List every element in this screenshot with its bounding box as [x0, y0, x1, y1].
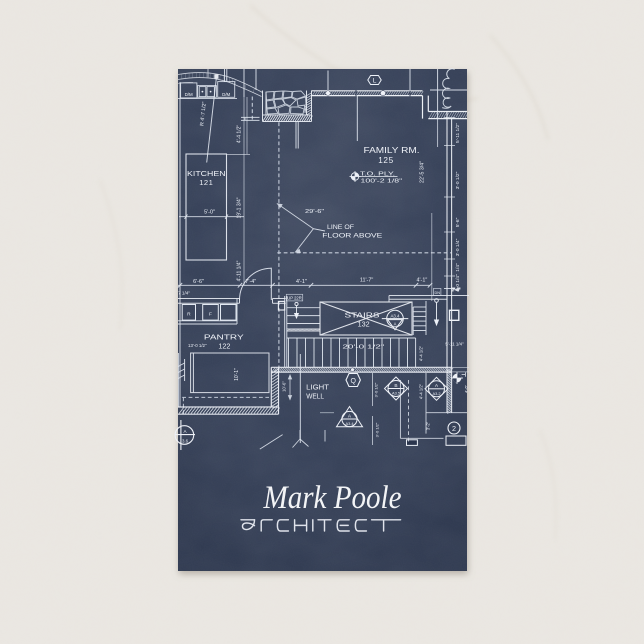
svg-text:22'-5 3/4": 22'-5 3/4" — [420, 161, 426, 183]
svg-text:Mark Poole: Mark Poole — [263, 480, 402, 516]
svg-text:3'-0 1/4": 3'-0 1/4" — [455, 238, 461, 256]
svg-text:1/4": 1/4" — [455, 263, 461, 272]
svg-text:L: L — [373, 77, 377, 84]
svg-text:2: 2 — [452, 424, 456, 433]
svg-text:B: B — [394, 383, 397, 389]
svg-text:KITCHEN: KITCHEN — [187, 169, 226, 178]
svg-text:A3.4: A3.4 — [345, 421, 354, 426]
svg-text:LINE OF: LINE OF — [327, 225, 354, 231]
svg-text:STAIRS: STAIRS — [345, 311, 380, 320]
svg-text:11'-7": 11'-7" — [360, 278, 373, 284]
svg-text:4'-4 1/2": 4'-4 1/2" — [419, 383, 424, 399]
svg-text:5'-11 1/4": 5'-11 1/4" — [445, 342, 464, 347]
svg-text:4'-4 1/2": 4'-4 1/2" — [237, 125, 243, 144]
svg-text:A3.5: A3.5 — [392, 391, 400, 396]
svg-text:20'-0 1/2": 20'-0 1/2" — [342, 345, 384, 351]
svg-text:A: A — [394, 322, 397, 327]
svg-text:DN: DN — [434, 291, 440, 295]
svg-text:A3.2: A3.2 — [432, 391, 440, 396]
svg-text:29'-6": 29'-6" — [305, 209, 324, 215]
svg-text:7 1/4": 7 1/4" — [178, 291, 190, 296]
svg-text:R: R — [187, 312, 191, 318]
svg-text:5'-0": 5'-0" — [204, 210, 215, 216]
svg-text:4'-6": 4'-6" — [464, 384, 469, 393]
svg-text:122: 122 — [218, 342, 230, 351]
svg-text:7'-4": 7'-4" — [452, 287, 461, 292]
svg-text:13'-0 1/2": 13'-0 1/2" — [188, 343, 207, 348]
svg-text:3'-2": 3'-2" — [426, 421, 431, 430]
svg-text:D/M: D/M — [222, 92, 230, 97]
svg-text:4'-1": 4'-1" — [417, 278, 428, 284]
svg-text:5'-11 1/2": 5'-11 1/2" — [455, 123, 461, 143]
svg-text:FLOOR ABOVE: FLOOR ABOVE — [322, 234, 382, 240]
svg-text:19'-1 3/4": 19'-1 3/4" — [237, 197, 243, 218]
svg-text:WELL: WELL — [306, 393, 324, 400]
svg-text:3'-0 1/2": 3'-0 1/2" — [374, 382, 379, 397]
svg-text:LIGHT: LIGHT — [306, 385, 330, 392]
svg-text:125: 125 — [378, 156, 393, 165]
svg-text:121: 121 — [199, 178, 213, 187]
svg-text:3'-0 1/2": 3'-0 1/2" — [375, 422, 380, 437]
svg-text:PANTRY: PANTRY — [204, 333, 244, 342]
svg-text:4'-11 1/4": 4'-11 1/4" — [237, 260, 243, 281]
svg-text:4'-1": 4'-1" — [296, 279, 307, 285]
svg-text:132: 132 — [358, 320, 370, 329]
svg-text:F: F — [209, 312, 212, 318]
svg-text:6'-6": 6'-6" — [193, 279, 204, 285]
svg-text:5'-6": 5'-6" — [455, 217, 461, 227]
svg-text:10'-6": 10'-6" — [282, 381, 287, 392]
svg-text:10'-1": 10'-1" — [234, 368, 240, 381]
svg-text:D/M: D/M — [185, 92, 193, 97]
svg-text:FAMILY RM.: FAMILY RM. — [364, 145, 420, 155]
svg-text:3.6: 3.6 — [182, 438, 189, 443]
svg-text:Q: Q — [350, 378, 356, 385]
svg-text:4'-4 1/2": 4'-4 1/2" — [419, 345, 424, 361]
svg-text:UP 22R: UP 22R — [287, 296, 302, 301]
svg-text:100'-2 1/8": 100'-2 1/8" — [361, 178, 403, 184]
svg-text:3'-0 1/2": 3'-0 1/2" — [455, 171, 461, 189]
svg-text:A3.4: A3.4 — [390, 313, 400, 318]
